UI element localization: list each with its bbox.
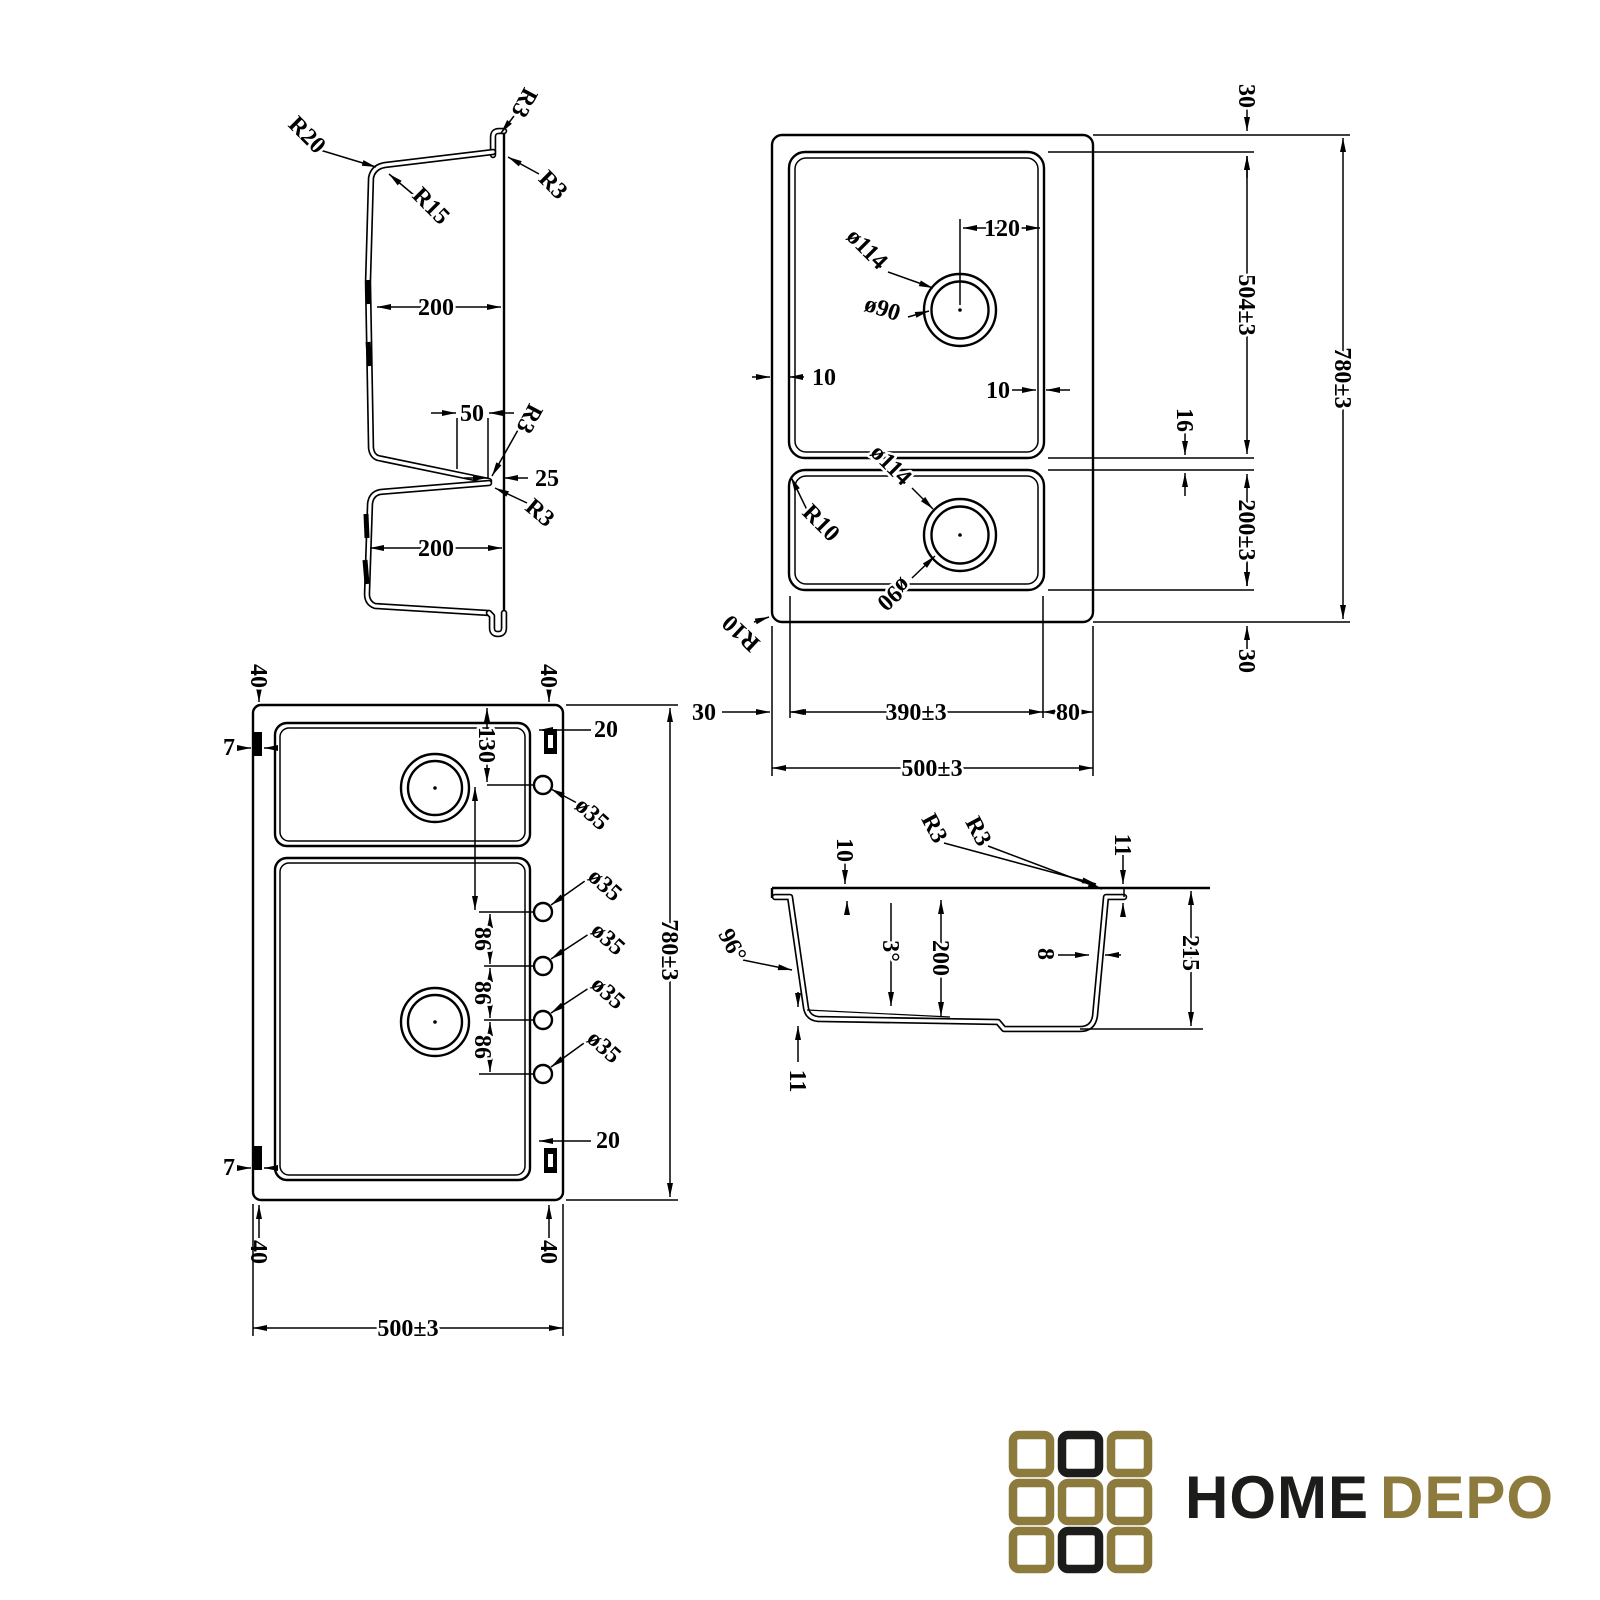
dim-clip-side-top-right: 20 (594, 717, 618, 743)
label-r15: R15 (407, 182, 455, 230)
logo-grid-square (1062, 1483, 1099, 1521)
dim-overall-depth: 215 (1177, 935, 1203, 971)
dim-top-bowl-width: 200 (418, 295, 454, 321)
dim-clip-side-bottom: 7 (223, 1155, 235, 1181)
dim-clip-top-left: 40 (245, 664, 271, 688)
label-corner-outer: R3 (916, 809, 953, 847)
dim-notch-offset: 25 (535, 466, 559, 492)
label-r20: R20 (283, 111, 331, 159)
logo-grid-square (1062, 1531, 1099, 1569)
dim-rim-inset-right: 10 (986, 378, 1010, 404)
holes-view: 40 40 7 20 130 86 86 86 ø35 ø (223, 664, 682, 1342)
label-drain2-inner: ø90 (872, 572, 916, 616)
holes-outline (253, 705, 563, 1200)
logo-grid-square (1013, 1483, 1050, 1521)
label-hole3-diameter: ø35 (586, 918, 630, 961)
logo-text-depo: DEPO (1380, 1464, 1554, 1531)
dim-rim-bottom: 30 (1233, 649, 1259, 673)
logo-grid-square (1062, 1435, 1099, 1473)
mounting-clips (254, 729, 557, 1173)
label-corner-inner: R3 (960, 812, 997, 850)
brand-logo: HOME DEPO (1013, 1435, 1554, 1569)
plan-view: 30 120 ø114 ø90 504±3 780±3 10 10 16 ø11 (692, 84, 1355, 782)
dim-divider-width: 16 (1171, 408, 1197, 432)
dim-ledge-depth: 10 (831, 838, 857, 862)
dim-overall-length: 780±3 (1329, 347, 1355, 408)
dim-bowl-depth: 200 (927, 940, 953, 976)
dim-bowl1-length: 504±3 (1233, 274, 1259, 335)
dim-rim-inset-left: 10 (812, 365, 836, 391)
logo-grid-icon (1013, 1435, 1148, 1569)
dim-hole-spacing-3: 86 (469, 1035, 495, 1059)
dim-clip-bottom-left: 40 (245, 1240, 271, 1264)
plan-dimensions: 30 120 ø114 ø90 504±3 780±3 10 10 16 ø11 (692, 84, 1355, 782)
label-hole4-diameter: ø35 (586, 972, 630, 1015)
logo-grid-square (1111, 1483, 1148, 1521)
dim-bowl2-length: 200±3 (1233, 499, 1259, 560)
logo-text-home: HOME (1185, 1464, 1369, 1531)
label-hole2-diameter: ø35 (583, 864, 627, 907)
dim-clip-top-right: 40 (535, 664, 561, 688)
label-drain1-inner: ø90 (861, 291, 903, 327)
dim-rim-lip: 11 (1109, 834, 1135, 857)
label-hole1-diameter: ø35 (570, 793, 614, 836)
dim-floor-thickness: 11 (784, 1070, 810, 1093)
label-hole5-diameter: ø35 (582, 1026, 626, 1069)
large-bowl-opening (275, 858, 530, 1180)
section-profile-view: 200 50 25 200 R20 R15 R3 R3 R3 R3 (283, 83, 572, 634)
dim-holes-overall-width: 500±3 (377, 1316, 438, 1342)
dim-bottom-bowl-width: 200 (418, 536, 454, 562)
bowl-section-dimensions: 10 R3 R3 11 96° 3° 200 8 215 11 (713, 809, 1203, 1092)
dim-clip-side-bottom-right: 20 (596, 1128, 620, 1154)
label-outer-corner-radius: R10 (717, 609, 765, 656)
sink-technical-drawing: 200 50 25 200 R20 R15 R3 R3 R3 R3 (0, 0, 1600, 1600)
dim-overall-width: 500±3 (901, 756, 962, 782)
dim-holes-overall-length: 780±3 (656, 919, 682, 980)
dim-hole-spacing-2: 86 (469, 981, 495, 1005)
label-r3-notch-upper: R3 (511, 399, 548, 437)
label-r3-hook: R3 (506, 83, 543, 121)
logo-grid-square (1013, 1531, 1050, 1569)
bowl-section-view: 10 R3 R3 11 96° 3° 200 8 215 11 (713, 809, 1210, 1092)
dim-notch-width: 50 (460, 401, 484, 427)
dim-wall-thickness: 8 (1032, 948, 1058, 960)
dim-rim-top: 30 (1233, 84, 1259, 108)
dim-bowl-width: 390±3 (885, 700, 946, 726)
label-bowl-corner-radius: R10 (797, 499, 845, 547)
label-r3-notch-lower: R3 (520, 494, 559, 533)
faucet-holes (534, 776, 552, 1083)
dim-clip-side-top: 7 (223, 735, 235, 761)
bowl-section-outline (772, 888, 1210, 1029)
label-r3-rim: R3 (533, 166, 572, 205)
label-drain2-outer: ø114 (865, 440, 916, 491)
bowl1-opening (789, 152, 1044, 458)
dim-drain-offset: 120 (984, 216, 1020, 242)
dim-clip-bottom-right: 40 (535, 1240, 561, 1264)
dim-ledge-width: 80 (1056, 700, 1080, 726)
dim-rim-left: 30 (692, 700, 716, 726)
label-floor-slope: 3° (877, 940, 903, 962)
logo-grid-square (1013, 1435, 1050, 1473)
logo-grid-square (1111, 1531, 1148, 1569)
dim-hole-spacing-1: 86 (469, 927, 495, 951)
logo-grid-square (1111, 1435, 1148, 1473)
label-drain1-outer: ø114 (841, 224, 892, 275)
dim-first-hole-offset: 130 (473, 727, 499, 763)
